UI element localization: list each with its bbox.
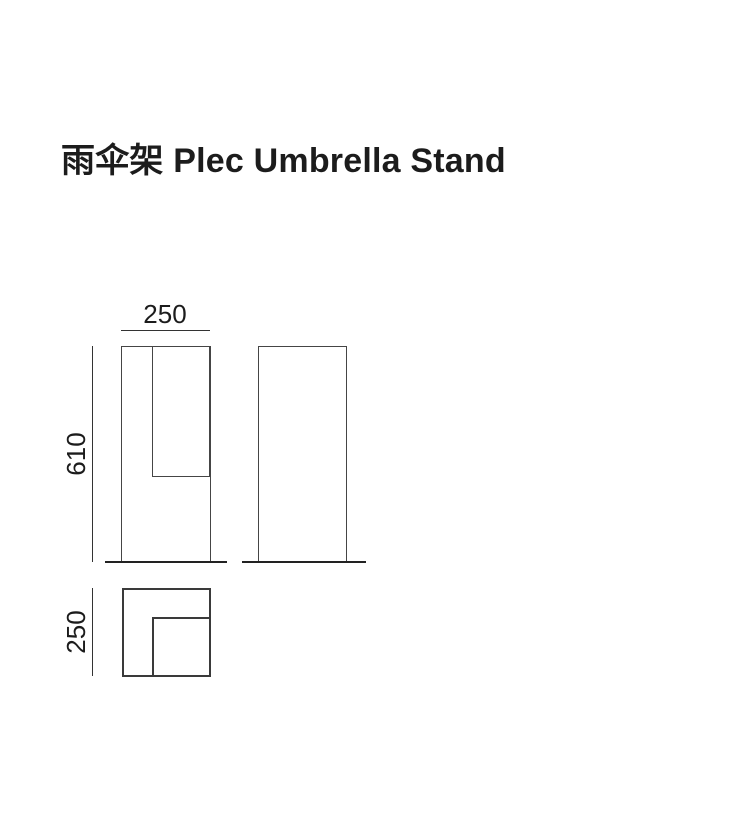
- dimension-line-width: [121, 330, 211, 331]
- ground-line-front: [105, 561, 227, 564]
- dimension-label-height: 610: [63, 394, 89, 514]
- ground-line-side: [242, 561, 366, 564]
- dimension-label-depth: 250: [63, 572, 89, 692]
- plan-view-inner-slot: [152, 617, 209, 675]
- side-elevation-outline: [258, 346, 347, 562]
- dimension-label-width: 250: [120, 301, 210, 327]
- front-elevation-inner-slot: [152, 346, 210, 477]
- page-title: 雨伞架 Plec Umbrella Stand: [61, 143, 506, 179]
- dimension-line-height: [92, 346, 93, 562]
- dimension-line-depth: [92, 588, 93, 676]
- page-canvas: 雨伞架 Plec Umbrella Stand 250 610 250: [0, 0, 750, 826]
